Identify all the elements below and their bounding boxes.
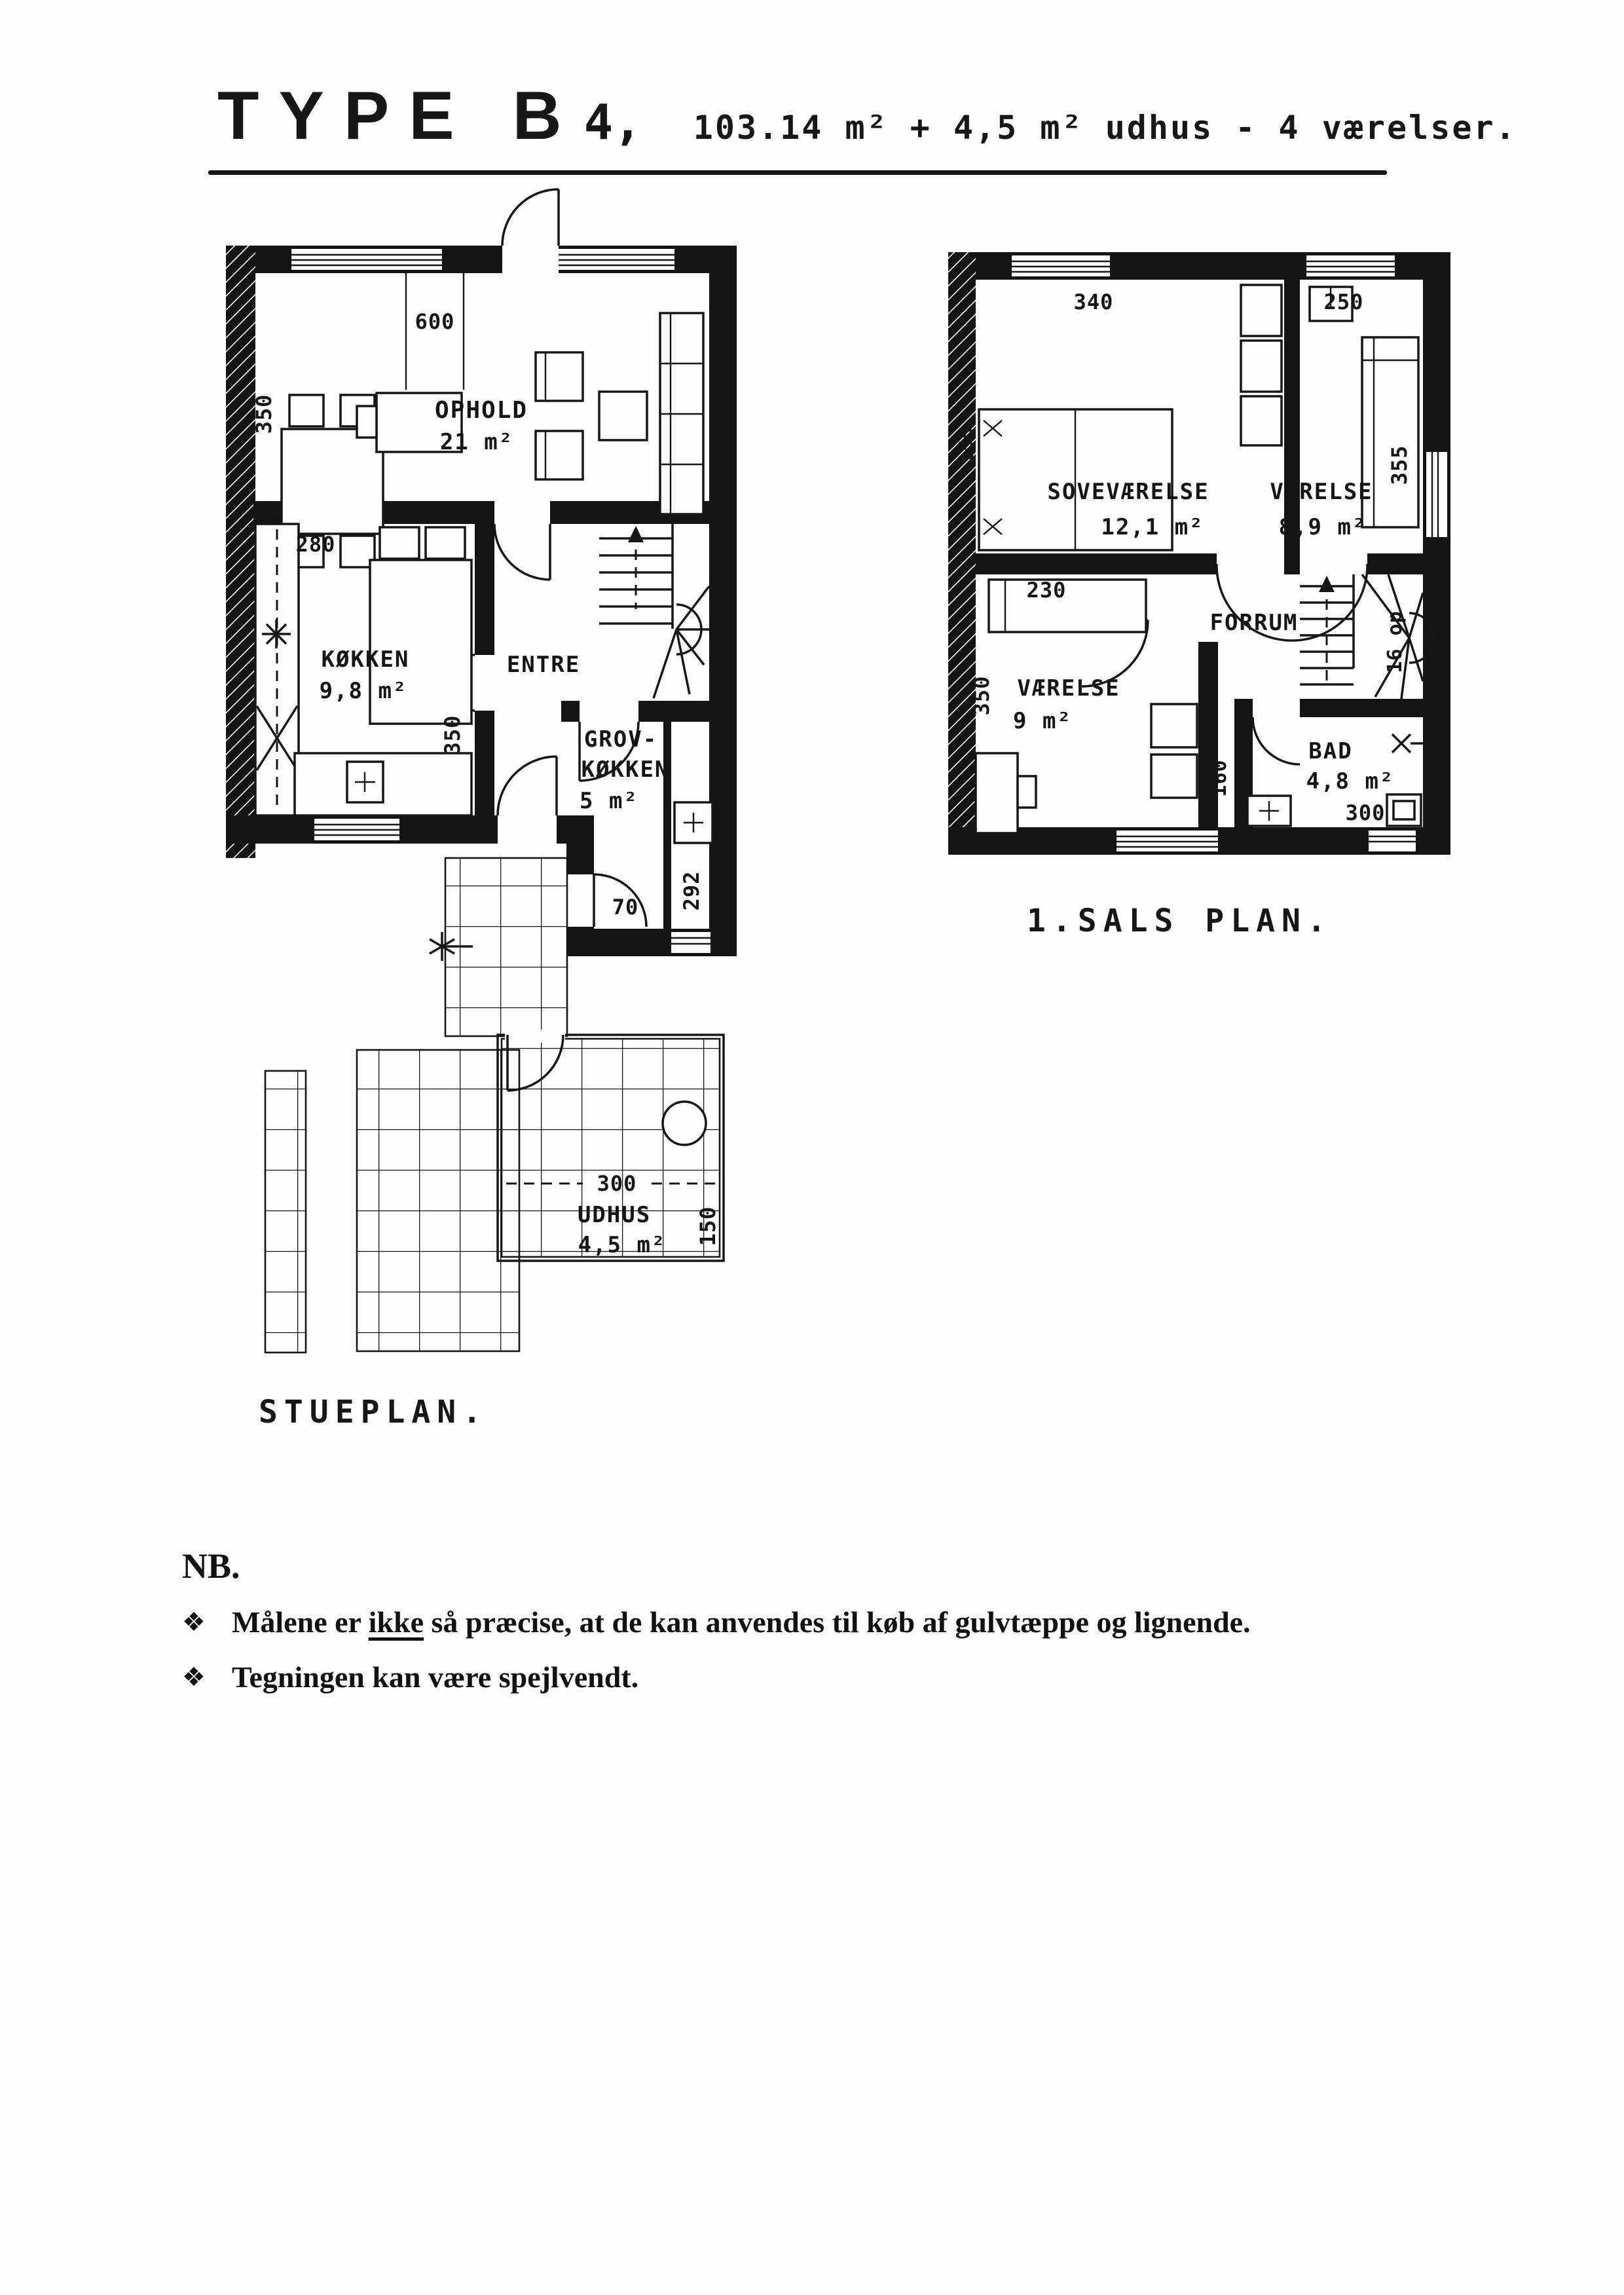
room-label-udhus: UDHUS xyxy=(578,1202,651,1228)
note-bullet-icon: ❖ xyxy=(182,1658,232,1696)
dim-stairs-count: 16 op xyxy=(1384,610,1407,673)
dim-grov-depth: 292 xyxy=(679,871,704,911)
stueplan-drawing: 600 350 OPHOLD 21 m² 280 KØKKEN 9,8 m² E… xyxy=(216,72,753,1362)
note-2-post: Tegningen kan være spejlvendt. xyxy=(232,1660,638,1694)
stueplan-windows xyxy=(291,246,710,953)
room-area-vaerelse-sw: 9 m² xyxy=(1013,708,1072,734)
note-1-underlined: ikke xyxy=(369,1605,424,1639)
dim-left-height: 350 xyxy=(251,394,276,434)
dim-sove-width: 340 xyxy=(1074,289,1114,314)
first-floor-drawing: 340 250 SOVEVÆRELSE 12,1 m² 155 VÆRELSE … xyxy=(943,249,1460,865)
notes-section: NB. ❖ Målene er ikke så præcise, at de k… xyxy=(182,1546,1335,1713)
room-label-grov-1: GROV- xyxy=(584,726,657,753)
dim-udhus-depth: 150 xyxy=(695,1206,720,1246)
room-area-vaerelse-ne: 8,9 m² xyxy=(1279,514,1367,540)
dim-vaerelse-width: 250 xyxy=(1324,289,1364,314)
room-label-vaerelse-ne: VÆRELSE xyxy=(1270,479,1373,505)
note-item-2: ❖ Tegningen kan være spejlvendt. xyxy=(182,1658,1335,1696)
scanned-floorplan-page: TYPE B 4, 103.14 m² + 4,5 m² udhus - 4 v… xyxy=(0,0,1624,2295)
room-label-grov-2: KØKKEN xyxy=(581,756,670,783)
dim-kokken-width: 280 xyxy=(296,532,336,557)
room-area-udhus: 4,5 m² xyxy=(578,1232,667,1258)
room-area-grov: 5 m² xyxy=(580,788,638,814)
room-label-bad: BAD xyxy=(1308,738,1352,764)
dim-bed-length: 230 xyxy=(1027,578,1067,603)
note-bullet-icon: ❖ xyxy=(182,1603,232,1641)
room-label-ophold: OPHOLD xyxy=(435,397,528,424)
note-1-pre: Målene er xyxy=(232,1605,369,1639)
dim-top-width: 600 xyxy=(415,309,455,334)
dim-bad-width: 300 xyxy=(1346,800,1386,825)
room-label-entre: ENTRE xyxy=(507,652,580,678)
room-area-kokken: 9,8 m² xyxy=(320,678,408,704)
dim-hall-width: 160 xyxy=(1208,759,1231,796)
note-item-1: ❖ Målene er ikke så præcise, at de kan a… xyxy=(182,1603,1335,1641)
room-area-bad: 4,8 m² xyxy=(1306,768,1395,794)
room-label-vaerelse-sw: VÆRELSE xyxy=(1017,675,1120,701)
dim-grov-door: 70 xyxy=(612,895,639,920)
dim-vaerelse-depth: 355 xyxy=(1387,445,1412,485)
caption-stueplan: STUEPLAN. xyxy=(259,1394,488,1430)
note-text-2: Tegningen kan være spejlvendt. xyxy=(232,1658,638,1696)
stueplan-stairs xyxy=(599,524,709,698)
note-1-post: så præcise, at de kan anvendes til køb a… xyxy=(424,1605,1251,1639)
sals-stairs xyxy=(1300,574,1434,699)
notes-heading: NB. xyxy=(182,1546,1335,1586)
room-label-sovevaerelse: SOVEVÆRELSE xyxy=(1047,479,1209,505)
title-areas: 103.14 m² + 4,5 m² udhus - 4 værelser. xyxy=(693,109,1517,147)
note-text-1: Målene er ikke så præcise, at de kan anv… xyxy=(232,1603,1251,1641)
dim-bed-width: 155 xyxy=(955,426,978,464)
room-area-sovevaerelse: 12,1 m² xyxy=(1101,514,1204,540)
room-area-ophold: 21 m² xyxy=(440,429,513,455)
dim-udhus-width: 300 xyxy=(597,1171,637,1196)
room-label-forrum: FORRUM xyxy=(1210,610,1299,636)
dim-kokken-door: 350 xyxy=(440,715,465,755)
dim-room-height: 350 xyxy=(969,676,994,716)
caption-first-floor: 1.SALS PLAN. xyxy=(1027,903,1333,939)
room-label-kokken: KØKKEN xyxy=(322,646,410,673)
